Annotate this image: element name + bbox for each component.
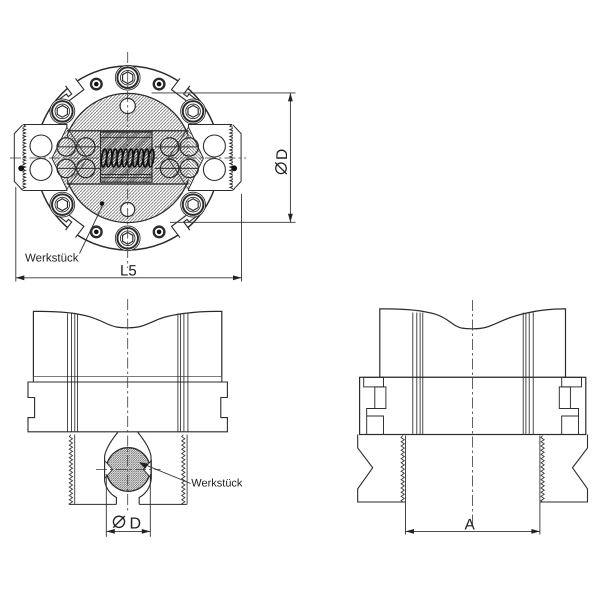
svg-text:Werkstück: Werkstück	[191, 477, 243, 489]
svg-text:Werkstück: Werkstück	[25, 253, 79, 265]
svg-text:D: D	[130, 515, 142, 532]
svg-text:L5: L5	[120, 263, 137, 280]
svg-text:A: A	[465, 517, 476, 534]
svg-text:D: D	[274, 149, 291, 160]
